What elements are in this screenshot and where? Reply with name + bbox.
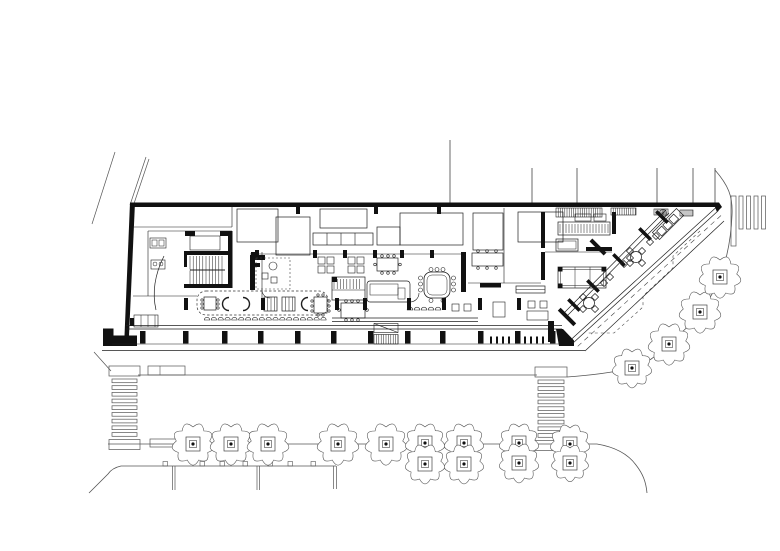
furniture-layer — [130, 250, 548, 327]
building-walls-layer — [103, 203, 722, 347]
floor-plan-drawing — [0, 0, 780, 551]
interior-rooms-layer — [133, 205, 693, 310]
floor-plan-page — [0, 0, 780, 551]
street-facade-layer — [102, 321, 585, 351]
